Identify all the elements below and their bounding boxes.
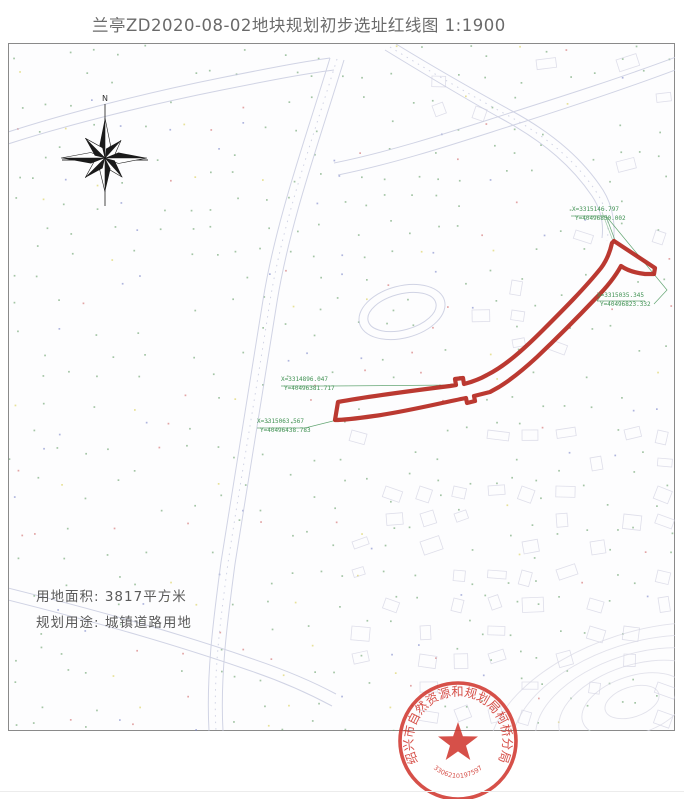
land-area-text: 用地面积: 3817平方米 — [36, 584, 192, 610]
land-use-text: 规划用途: 城镇道路用地 — [36, 610, 192, 636]
coordinate-label-x: X=3315063.567 — [257, 418, 304, 425]
north-label: N — [102, 94, 108, 103]
stadium-track — [353, 275, 451, 348]
coordinate-label-y: Y=40496438.783 — [260, 427, 311, 434]
map-content: X=3315146.797 Y=40496850.002 X=3315035.3… — [6, 44, 684, 799]
parcel-outline — [335, 241, 655, 420]
road-line — [222, 60, 344, 731]
parcel-red-line — [335, 241, 655, 420]
official-stamp: 绍兴市自然资源和规划局柯桥分局 3306210197597 — [400, 683, 516, 799]
map-canvas: X=3315146.797 Y=40496850.002 X=3315035.3… — [0, 0, 684, 799]
coordinate-label-x: X=3315035.345 — [597, 292, 644, 299]
road-line — [215, 59, 337, 731]
coordinate-label-x: X=3314896.047 — [281, 376, 328, 383]
coordinate-label-y: Y=40496381.717 — [284, 385, 335, 392]
coordinate-label-y: Y=40496850.002 — [575, 215, 626, 222]
land-info-block: 用地面积: 3817平方米 规划用途: 城镇道路用地 — [36, 584, 192, 636]
stamp-star-icon — [438, 722, 478, 760]
stadium-track-inner — [364, 286, 441, 339]
road-line — [8, 58, 330, 132]
scan-page-edge — [0, 791, 684, 792]
coordinate-label-y: Y=40496823.332 — [600, 301, 651, 308]
road-line — [396, 44, 614, 244]
coordinate-label-x: X=3315146.797 — [572, 206, 619, 213]
basemap-contours — [465, 587, 684, 799]
north-arrow-compass-rose: N — [61, 94, 148, 206]
stamp-number: 3306210197597 — [432, 764, 484, 780]
survey-leader-lines — [257, 212, 667, 428]
road-line — [8, 70, 334, 144]
road-line — [334, 57, 676, 163]
